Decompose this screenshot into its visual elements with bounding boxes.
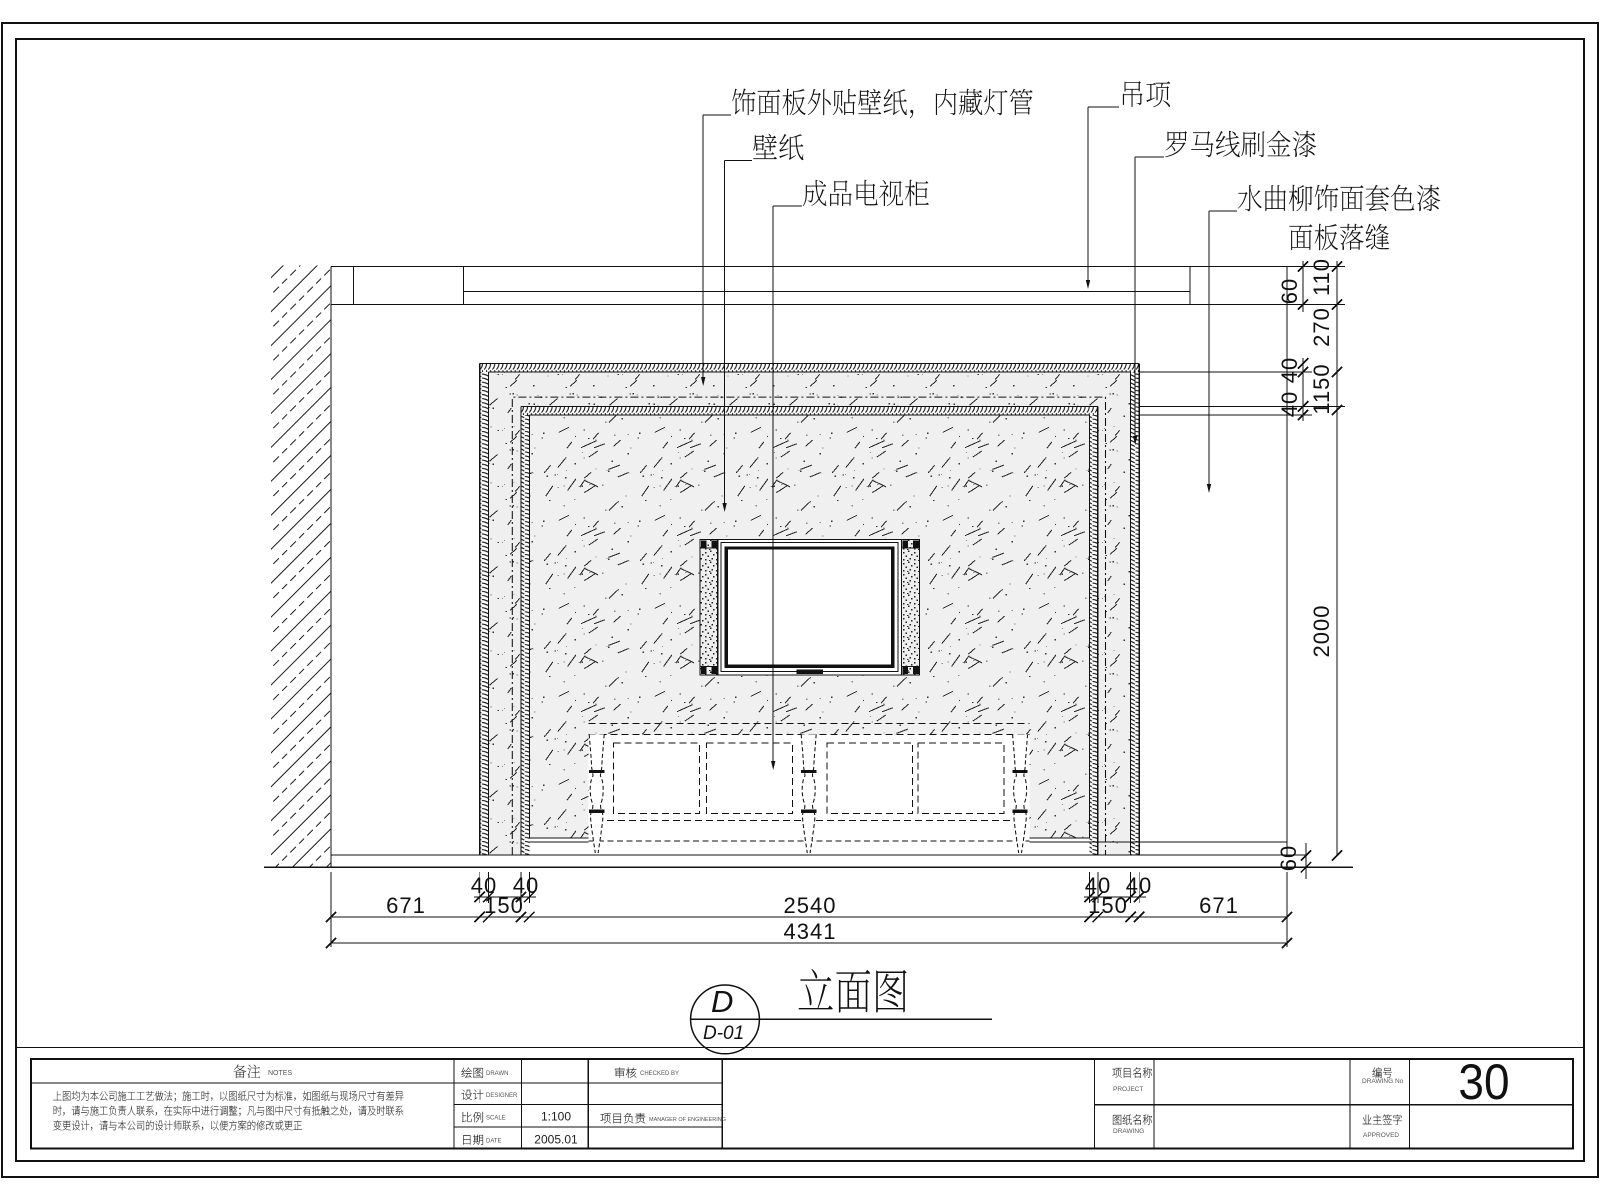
svg-text:DESIGNER: DESIGNER [486,1093,518,1099]
svg-text:DRAWING: DRAWING [1113,1128,1144,1135]
svg-text:671: 671 [1199,893,1239,918]
svg-text:2540: 2540 [784,893,837,918]
svg-text:NOTES: NOTES [268,1070,292,1077]
svg-text:40: 40 [1277,391,1302,417]
svg-text:MANAGER OF ENGINEERING: MANAGER OF ENGINEERING [649,1117,726,1123]
svg-text:SCALE: SCALE [486,1116,506,1122]
svg-text:2000: 2000 [1309,605,1334,658]
svg-text:30: 30 [1458,1055,1509,1110]
svg-text:1:100: 1:100 [541,1110,571,1124]
svg-text:D-01: D-01 [703,1023,744,1044]
svg-text:4341: 4341 [784,919,837,944]
svg-text:D: D [711,984,733,1019]
svg-text:150: 150 [1088,893,1128,918]
svg-text:PROJECT: PROJECT [1113,1086,1143,1093]
svg-text:270: 270 [1309,307,1334,347]
svg-text:DRAWN: DRAWN [486,1071,508,1077]
svg-text:110: 110 [1309,258,1334,296]
svg-text:DRAWING No: DRAWING No [1362,1078,1404,1085]
svg-text:40: 40 [1277,357,1302,383]
svg-text:40: 40 [1126,873,1152,898]
svg-text:60: 60 [1277,278,1302,304]
svg-text:60: 60 [1276,845,1301,871]
svg-text:CHECKED BY: CHECKED BY [640,1071,679,1077]
svg-text:1150: 1150 [1309,363,1334,414]
svg-text:2005.01: 2005.01 [534,1133,578,1147]
svg-text:DATE: DATE [486,1139,502,1145]
svg-text:671: 671 [386,893,426,918]
svg-text:APPROVED: APPROVED [1363,1132,1399,1139]
svg-text:150: 150 [484,893,524,918]
